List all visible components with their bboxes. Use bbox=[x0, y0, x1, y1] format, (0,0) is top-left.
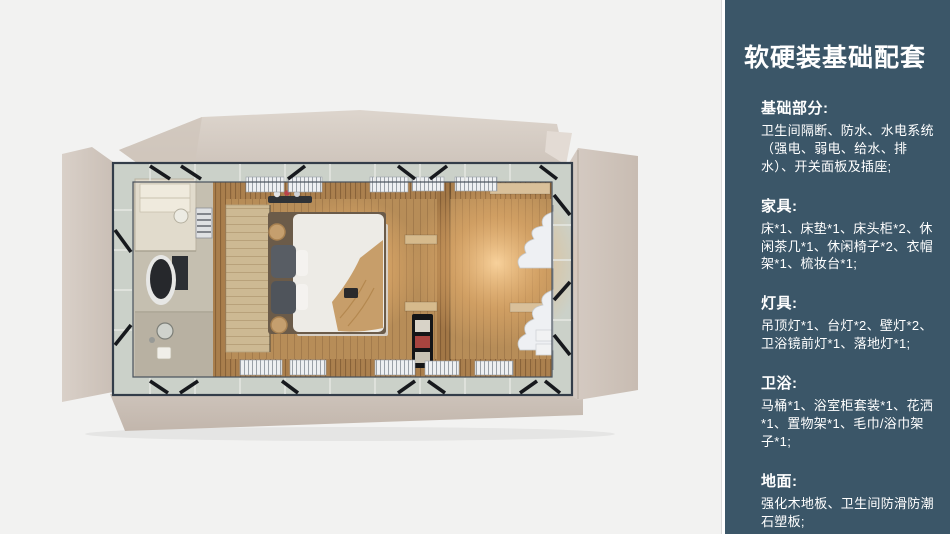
section-heading: 地面: bbox=[761, 470, 936, 491]
section-body: 马桶*1、浴室柜套装*1、花洒*1、置物架*1、毛巾/浴巾架子*1; bbox=[761, 397, 936, 451]
sidebar-title: 软硬装基础配套 bbox=[744, 44, 936, 73]
bed bbox=[268, 212, 388, 336]
section-flooring: 地面: 强化木地板、卫生间防滑防潮石塑板; bbox=[761, 470, 936, 531]
section-heading: 灯具: bbox=[761, 292, 936, 313]
spec-sidebar: 软硬装基础配套 基础部分: 卫生间隔断、防水、水电系统（强电、弱电、给水、排水）… bbox=[722, 0, 950, 534]
shower-tray-item bbox=[157, 347, 171, 359]
shell-panel-bottom bbox=[110, 394, 583, 431]
shower-area bbox=[135, 313, 213, 377]
section-basics: 基础部分: 卫生间隔断、防水、水电系统（强电、弱电、给水、排水）、开关面板及插座… bbox=[761, 97, 936, 176]
section-body: 强化木地板、卫生间防滑防潮石塑板; bbox=[761, 495, 936, 531]
shower-head bbox=[149, 337, 155, 343]
bedside-pouf-2 bbox=[271, 317, 287, 333]
section-heading: 基础部分: bbox=[761, 97, 936, 118]
storage-box bbox=[536, 330, 552, 341]
section-body: 床*1、床垫*1、床头柜*2、休闲茶几*1、休闲椅子*2、衣帽架*1、梳妆台*1… bbox=[761, 220, 936, 274]
bedside-pouf bbox=[269, 224, 285, 240]
section-lighting: 灯具: 吊顶灯*1、台灯*2、壁灯*2、卫浴镜前灯*1、落地灯*1; bbox=[761, 292, 936, 353]
bed-pillow bbox=[271, 245, 296, 278]
sink-basin bbox=[174, 209, 188, 223]
slide-canvas: 软硬装基础配套 基础部分: 卫生间隔断、防水、水电系统（强电、弱电、给水、排水）… bbox=[0, 0, 950, 534]
section-body: 吊顶灯*1、台灯*2、壁灯*2、卫浴镜前灯*1、落地灯*1; bbox=[761, 317, 936, 353]
high-shelf bbox=[490, 183, 550, 194]
floorplan-render bbox=[0, 0, 722, 534]
section-bathroom: 卫浴: 马桶*1、浴室柜套装*1、花洒*1、置物架*1、毛巾/浴巾架子*1; bbox=[761, 372, 936, 451]
bed-tray bbox=[344, 288, 358, 298]
towel-radiator bbox=[196, 208, 212, 238]
floorplan-svg bbox=[0, 0, 722, 534]
shower-drain bbox=[157, 323, 173, 339]
headboard-wardrobe-panel bbox=[226, 205, 270, 352]
shell-panel-left bbox=[62, 147, 113, 402]
storage-box-2 bbox=[536, 344, 552, 355]
section-body: 卫生间隔断、防水、水电系统（强电、弱电、给水、排水）、开关面板及插座; bbox=[761, 122, 936, 176]
section-heading: 家具: bbox=[761, 195, 936, 216]
shell-panel-top-facet bbox=[119, 117, 202, 163]
bed-pillow-2 bbox=[271, 281, 296, 314]
dressing-light-glow bbox=[412, 178, 582, 348]
section-heading: 卫浴: bbox=[761, 372, 936, 393]
section-furniture: 家具: 床*1、床垫*1、床头柜*2、休闲茶几*1、休闲椅子*2、衣帽架*1、梳… bbox=[761, 195, 936, 274]
